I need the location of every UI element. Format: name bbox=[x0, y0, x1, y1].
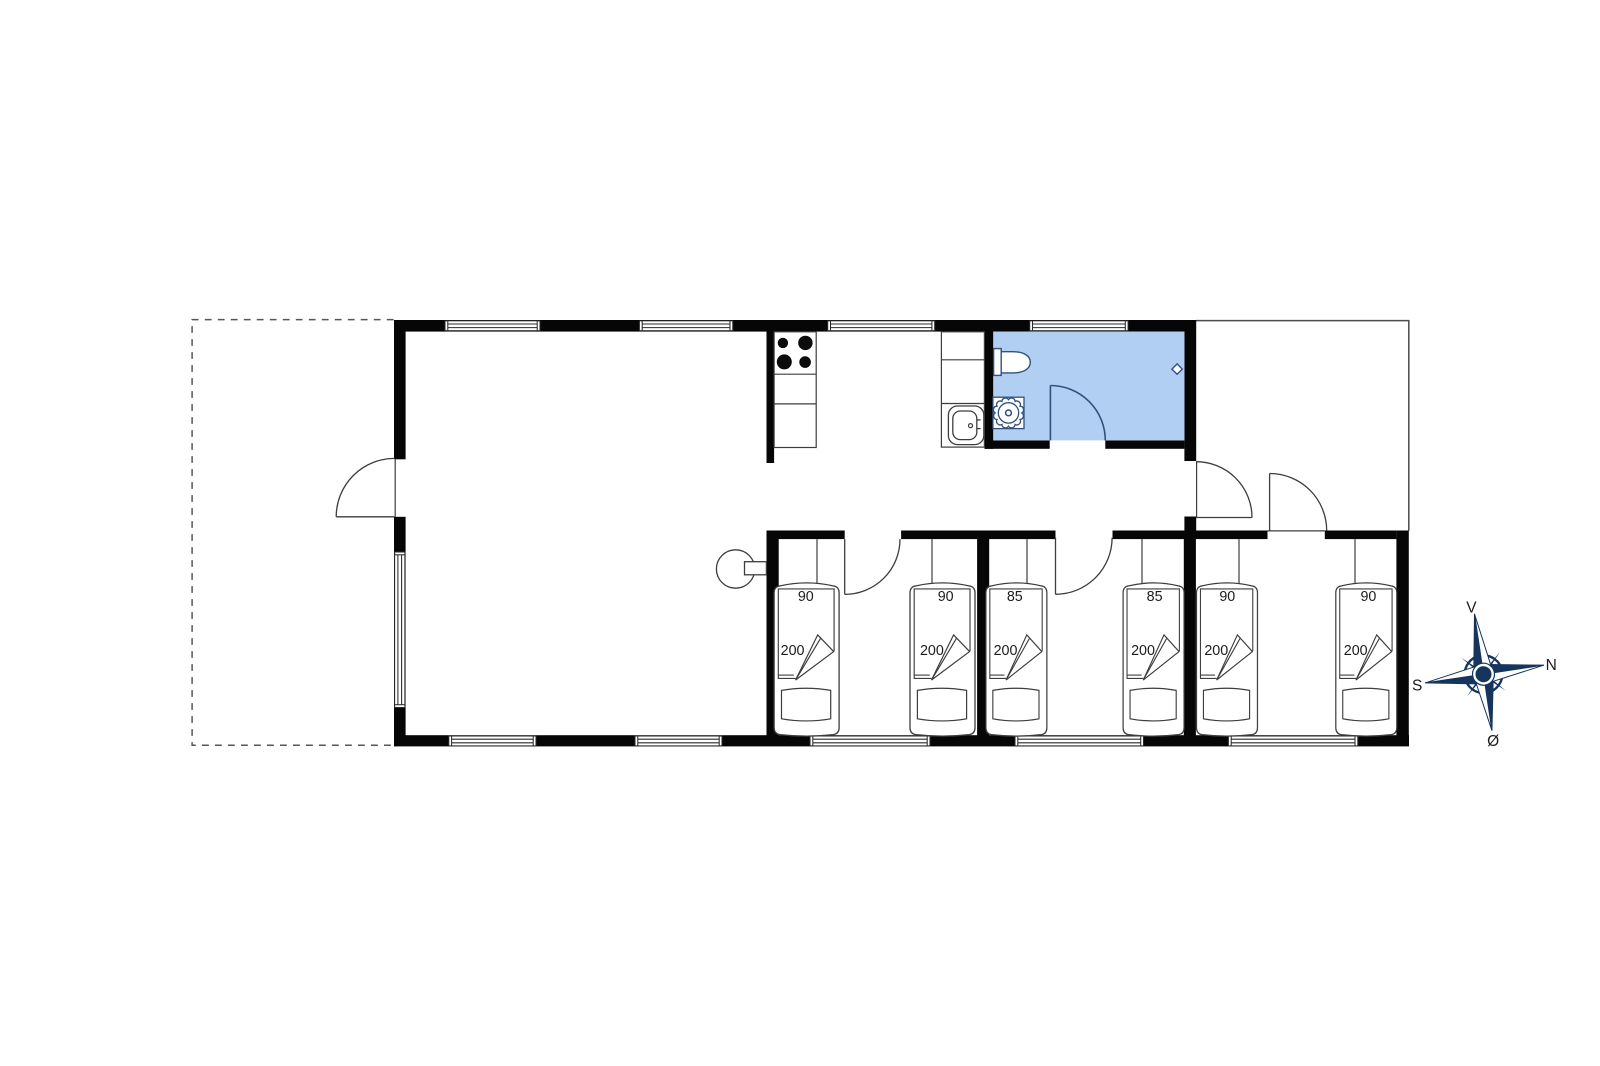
svg-text:200: 200 bbox=[994, 643, 1018, 659]
svg-text:90: 90 bbox=[1219, 589, 1235, 605]
svg-text:V: V bbox=[1466, 599, 1477, 616]
svg-text:90: 90 bbox=[938, 589, 954, 605]
svg-text:N: N bbox=[1546, 657, 1557, 674]
svg-text:S: S bbox=[1412, 678, 1422, 695]
svg-text:200: 200 bbox=[781, 643, 805, 659]
svg-text:90: 90 bbox=[1360, 589, 1376, 605]
svg-text:200: 200 bbox=[1204, 643, 1228, 659]
svg-text:85: 85 bbox=[1147, 589, 1163, 605]
svg-text:Ø: Ø bbox=[1487, 733, 1499, 750]
svg-text:85: 85 bbox=[1007, 589, 1023, 605]
svg-text:90: 90 bbox=[798, 589, 814, 605]
svg-text:200: 200 bbox=[1131, 643, 1155, 659]
svg-text:200: 200 bbox=[920, 643, 944, 659]
svg-text:200: 200 bbox=[1344, 643, 1368, 659]
